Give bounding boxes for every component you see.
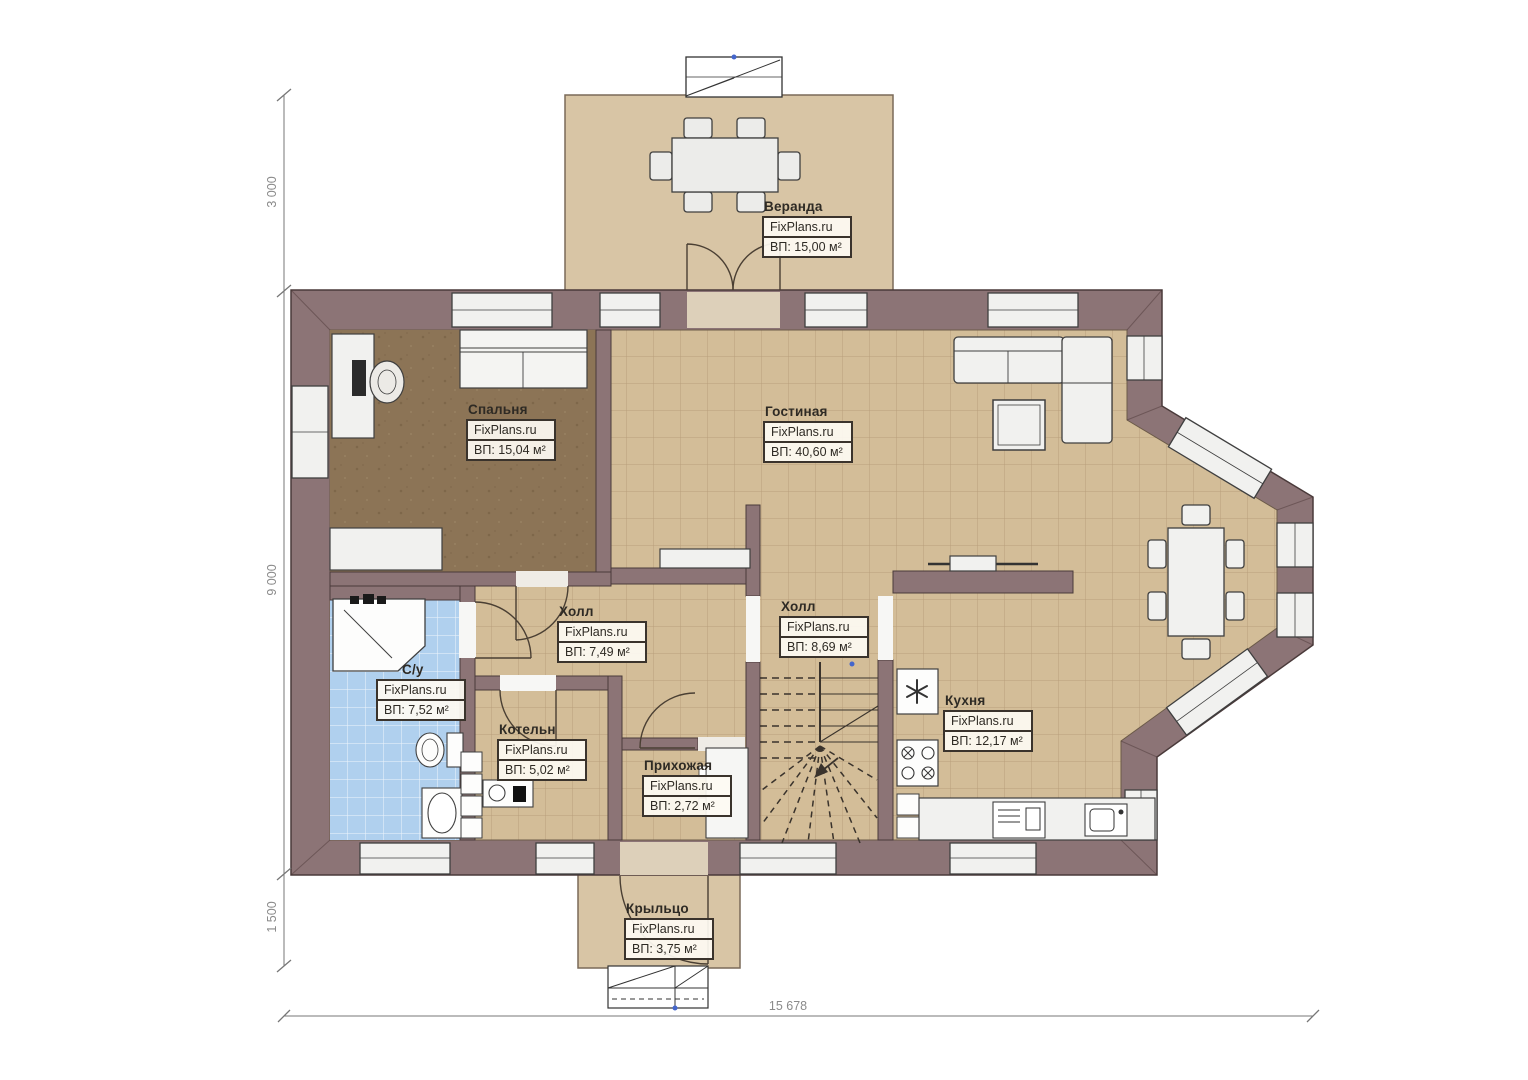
desk-chair	[370, 361, 404, 403]
room-area: ВП: 7,49 м²	[559, 643, 645, 661]
room-area: ВП: 12,17 м²	[945, 732, 1031, 750]
floor-plan-canvas	[0, 0, 1528, 1080]
brand-watermark: FixPlans.ru	[626, 920, 712, 940]
room-label-veranda: Веранда FixPlans.ru ВП: 15,00 м²	[762, 199, 852, 258]
room-label-entry: Прихожая FixPlans.ru ВП: 2,72 м²	[642, 758, 732, 817]
brand-watermark: FixPlans.ru	[781, 618, 867, 638]
room-info-box: FixPlans.ru ВП: 7,52 м²	[376, 679, 466, 721]
window-bay-right-1	[1277, 523, 1313, 567]
room-info-box: FixPlans.ru ВП: 40,60 м²	[763, 421, 853, 463]
room-name: Гостиная	[765, 404, 853, 419]
room-label-kitchen: Кухня FixPlans.ru ВП: 12,17 м²	[943, 693, 1033, 752]
dishwasher	[993, 802, 1045, 838]
room-name: Холл	[559, 604, 647, 619]
room-info-box: FixPlans.ru ВП: 2,72 м²	[642, 775, 732, 817]
room-info-box: FixPlans.ru ВП: 15,00 м²	[762, 216, 852, 258]
dimension-left-middle: 9 000	[265, 552, 279, 608]
window-bottom-3	[740, 843, 836, 874]
wall-boiler-right	[608, 676, 622, 840]
room-area: ВП: 15,04 м²	[468, 441, 554, 459]
porch-steps-symbol	[608, 966, 708, 1011]
window-right-upper	[1127, 336, 1162, 380]
room-label-bathroom: С/у FixPlans.ru ВП: 7,52 м²	[376, 662, 466, 721]
wall-stairs-right	[878, 660, 893, 840]
window-left-bedroom	[292, 386, 328, 478]
wardrobe	[460, 330, 587, 388]
boiler-unit	[483, 780, 533, 807]
room-name: Кухня	[945, 693, 1033, 708]
bathroom-door-opening	[459, 602, 476, 658]
room-info-box: FixPlans.ru ВП: 12,17 м²	[943, 710, 1033, 752]
room-label-living: Гостиная FixPlans.ru ВП: 40,60 м²	[763, 404, 853, 463]
room-name: Холл	[781, 599, 869, 614]
floor-plan-page: Веранда FixPlans.ru ВП: 15,00 м² Спальня…	[0, 0, 1528, 1080]
brand-watermark: FixPlans.ru	[764, 218, 850, 238]
dimension-left-bottom: 1 500	[265, 889, 279, 945]
shower-cabin	[333, 594, 425, 671]
coffee-table	[993, 400, 1045, 450]
room-name: Прихожая	[644, 758, 732, 773]
room-name: С/у	[402, 662, 466, 677]
room-label-bedroom: Спальня FixPlans.ru ВП: 15,04 м²	[466, 402, 556, 461]
room-area: ВП: 40,60 м²	[765, 443, 851, 461]
room-name: Веранда	[764, 199, 852, 214]
room-label-hall-stairs: Холл FixPlans.ru ВП: 8,69 м²	[779, 599, 869, 658]
room-name: Котельн	[499, 722, 587, 737]
kitchen-passage-opening	[878, 596, 893, 660]
window-bottom-1	[360, 843, 450, 874]
window-bottom-2	[536, 843, 594, 874]
bedroom-closet	[330, 528, 442, 570]
brand-watermark: FixPlans.ru	[468, 421, 554, 441]
room-info-box: FixPlans.ru ВП: 5,02 м²	[497, 739, 587, 781]
room-name: Спальня	[468, 402, 556, 417]
window-top-1	[452, 293, 552, 327]
room-area: ВП: 5,02 м²	[499, 761, 585, 779]
room-area: ВП: 8,69 м²	[781, 638, 867, 656]
dimension-left-top: 3 000	[265, 164, 279, 220]
porch-door-threshold	[620, 842, 708, 875]
brand-watermark: FixPlans.ru	[765, 423, 851, 443]
veranda-top-window-symbol	[686, 55, 782, 98]
brand-watermark: FixPlans.ru	[559, 623, 645, 643]
window-top-3	[805, 293, 867, 327]
room-info-box: FixPlans.ru ВП: 7,49 м²	[557, 621, 647, 663]
brand-watermark: FixPlans.ru	[499, 741, 585, 761]
sideboard-shelf	[660, 549, 750, 568]
tv-console-wall	[893, 571, 1073, 593]
hall-passage-opening	[746, 596, 760, 662]
room-info-box: FixPlans.ru ВП: 15,04 м²	[466, 419, 556, 461]
room-name: Крыльцо	[626, 901, 714, 916]
brand-watermark: FixPlans.ru	[378, 681, 464, 701]
pedestal-sink	[422, 788, 462, 838]
room-area: ВП: 3,75 м²	[626, 940, 712, 958]
wall-bedroom-bottom	[330, 572, 611, 586]
boiler-door-opening	[500, 675, 556, 691]
dimension-bottom-total: 15 678	[760, 999, 816, 1013]
room-label-porch: Крыльцо FixPlans.ru ВП: 3,75 м²	[624, 901, 714, 960]
component-marker-dot	[673, 1006, 678, 1011]
brand-watermark: FixPlans.ru	[945, 712, 1031, 732]
component-marker-dot	[850, 662, 855, 667]
kitchen-cabinet	[897, 794, 919, 815]
wall-bedroom-right	[596, 330, 611, 572]
room-area: ВП: 15,00 м²	[764, 238, 850, 256]
wall-bathroom-top	[330, 586, 460, 600]
window-top-4	[988, 293, 1078, 327]
room-label-hall-small: Холл FixPlans.ru ВП: 7,49 м²	[557, 604, 647, 663]
toilet	[416, 733, 463, 767]
kitchen-cabinet	[897, 817, 919, 838]
brand-watermark: FixPlans.ru	[644, 777, 730, 797]
veranda-door-threshold	[687, 292, 780, 328]
room-info-box: FixPlans.ru ВП: 8,69 м²	[779, 616, 869, 658]
fridge	[897, 669, 938, 714]
room-area: ВП: 7,52 м²	[378, 701, 464, 719]
room-area: ВП: 2,72 м²	[644, 797, 730, 815]
room-info-box: FixPlans.ru ВП: 3,75 м²	[624, 918, 714, 960]
wall-living-hall	[611, 568, 746, 584]
window-bay-right-2	[1277, 593, 1313, 637]
room-label-boiler: Котельн FixPlans.ru ВП: 5,02 м²	[497, 722, 587, 781]
dining-table	[1168, 528, 1224, 636]
stove	[897, 740, 938, 786]
window-top-2	[600, 293, 660, 327]
desk-monitor	[352, 360, 366, 396]
kitchen-sink	[1085, 804, 1127, 836]
component-marker-dot	[732, 55, 737, 60]
window-bottom-4	[950, 843, 1036, 874]
bedroom-door-opening	[516, 571, 568, 587]
